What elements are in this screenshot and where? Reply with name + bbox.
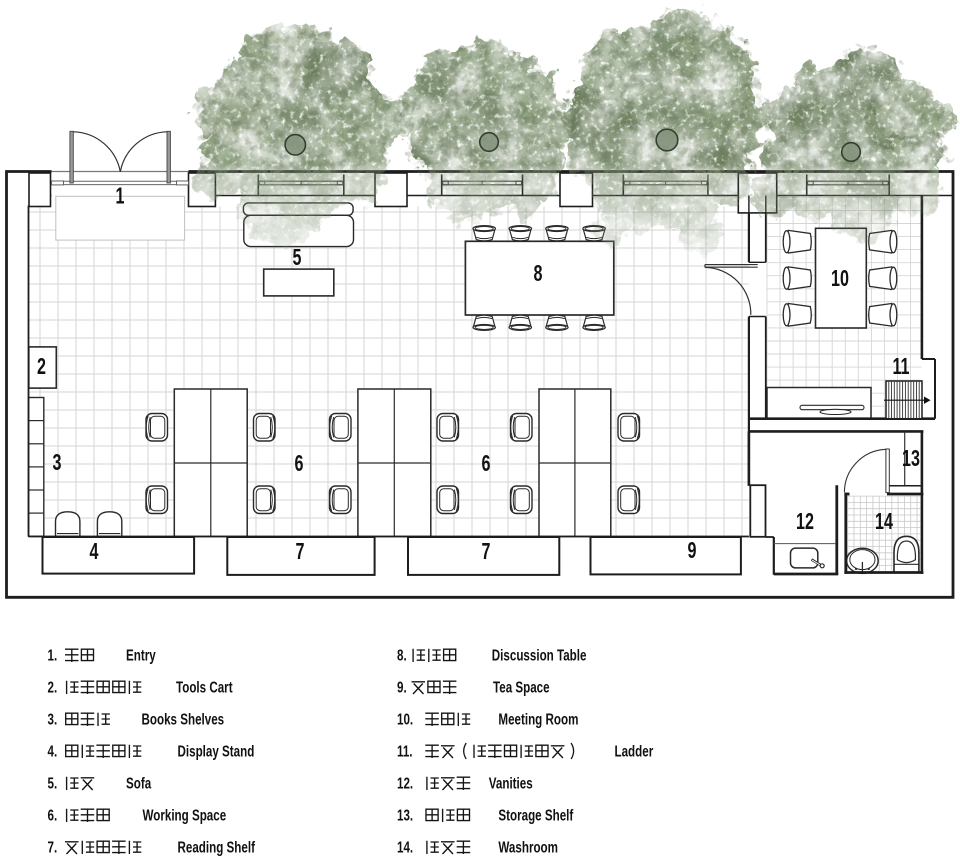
- svg-text:Discussion Table: Discussion Table: [492, 647, 587, 664]
- svg-text:3: 3: [53, 450, 62, 475]
- svg-text:Entry: Entry: [126, 647, 156, 664]
- svg-text:Working Space: Working Space: [143, 807, 227, 824]
- svg-text:8: 8: [534, 261, 543, 286]
- svg-text:Ladder: Ladder: [615, 743, 654, 760]
- svg-text:11: 11: [892, 354, 909, 379]
- svg-text:Sofa: Sofa: [126, 775, 151, 792]
- svg-text:Tools Cart: Tools Cart: [176, 679, 233, 696]
- svg-text:6: 6: [482, 451, 491, 476]
- svg-text:7: 7: [296, 539, 305, 564]
- svg-text:6.: 6.: [48, 807, 58, 824]
- svg-text:7.: 7.: [48, 839, 58, 856]
- svg-text:13: 13: [902, 446, 920, 471]
- svg-text:2.: 2.: [48, 679, 58, 696]
- svg-text:4: 4: [90, 539, 99, 564]
- svg-text:Books Shelves: Books Shelves: [142, 711, 225, 728]
- svg-text:Tea Space: Tea Space: [493, 679, 550, 696]
- svg-text:7: 7: [482, 539, 491, 564]
- svg-text:14: 14: [875, 509, 893, 534]
- svg-text:Reading Shelf: Reading Shelf: [178, 839, 256, 856]
- svg-text:10: 10: [831, 266, 849, 291]
- svg-text:5.: 5.: [48, 775, 58, 792]
- svg-text:10.: 10.: [397, 711, 413, 728]
- svg-text:9: 9: [688, 538, 697, 563]
- svg-text:4.: 4.: [48, 743, 58, 760]
- svg-text:8.: 8.: [397, 647, 407, 664]
- svg-text:13.: 13.: [397, 807, 413, 824]
- svg-text:11.: 11.: [397, 743, 413, 760]
- svg-text:1.: 1.: [48, 647, 58, 664]
- svg-text:Vanities: Vanities: [489, 775, 533, 792]
- svg-text:Washroom: Washroom: [498, 839, 558, 856]
- svg-text:3.: 3.: [48, 711, 58, 728]
- svg-text:6: 6: [295, 451, 304, 476]
- svg-text:12.: 12.: [397, 775, 413, 792]
- svg-text:12: 12: [796, 509, 814, 534]
- svg-text:9.: 9.: [397, 679, 407, 696]
- svg-text:Meeting Room: Meeting Room: [498, 711, 578, 728]
- svg-text:1: 1: [116, 184, 125, 209]
- svg-text:Display Stand: Display Stand: [178, 743, 255, 760]
- svg-text:5: 5: [293, 245, 302, 270]
- svg-text:14.: 14.: [397, 839, 413, 856]
- svg-text:2: 2: [37, 354, 46, 379]
- svg-text:Storage Shelf: Storage Shelf: [498, 807, 573, 824]
